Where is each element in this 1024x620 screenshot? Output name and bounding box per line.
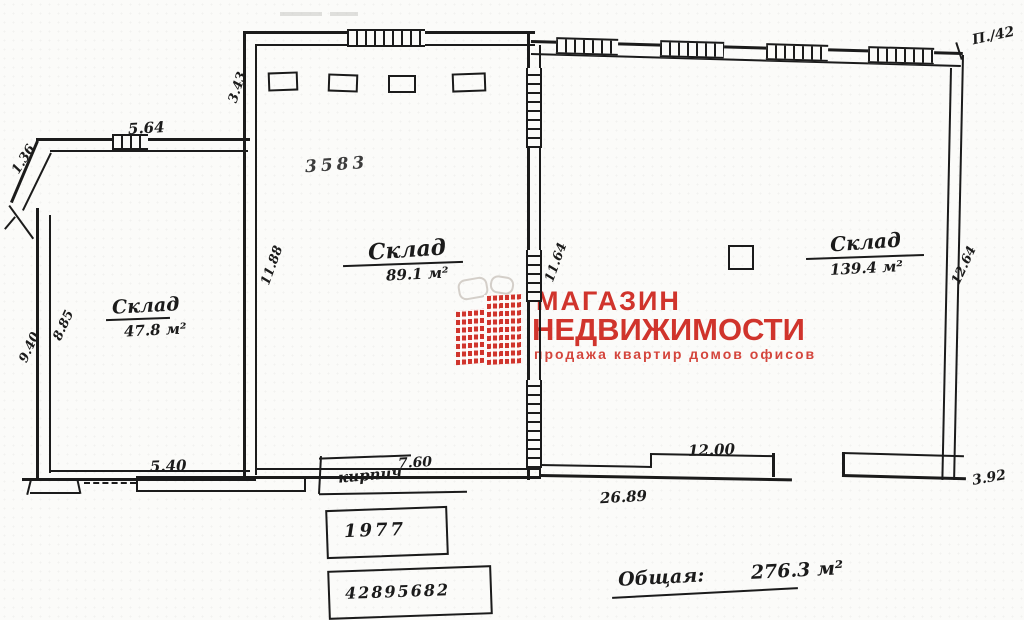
total-area-line: Общая: 276.3 м² [618,557,844,591]
dim-bottom-right: 3.92 [971,467,1007,489]
wall-segment [540,464,652,468]
dim-bottom-step: 12.00 [688,440,736,460]
year-stamp-text: 1977 [344,519,407,542]
room-right-name: Склад [829,228,901,257]
agency-watermark: МАГАЗИН НЕДВИЖИМОСТИ продажа квартир дом… [450,276,795,371]
door-leaf [8,205,34,239]
pillar [728,245,754,270]
dim-top-window: 5.64 [128,118,165,138]
dim-top-offset: 3.43 [226,70,250,105]
logo-title-line2: НЕДВИЖИМОСТИ [532,312,805,348]
material-bracket [319,491,467,496]
wall-segment [842,452,964,457]
wall-segment [255,45,257,475]
total-area-label: Общая: [618,564,705,590]
logo-tower-gap [484,295,487,364]
wall-segment [842,474,966,480]
logo-building-icon [487,294,523,365]
corner-note: П./42 [971,24,1016,49]
room-mid-name: Склад [367,234,447,265]
door-leaf-tick [4,216,16,230]
material-note: кирпич [337,463,402,487]
dim-bottom-mid: 7.60 [398,454,433,472]
dim-left-outer: 9.40 [16,330,43,365]
room-left-name: Склад [111,293,179,318]
wall-segment [243,33,246,480]
logo-tagline: продажа квартир домов офисов [534,346,816,362]
dim-bottom-left: 5.40 [150,456,187,475]
scan-smudge [330,12,358,16]
inventory-stamp-text: 42895682 [345,580,451,603]
window-hatch [556,37,618,56]
wall-segment [842,452,845,476]
logo-sketch-balloon-icon [489,274,516,296]
wall-segment [650,454,652,466]
floor-plan-scan: { "logo": { "line1": "МАГАЗИН", "line2":… [0,0,1024,605]
dim-right-wall: 12.64 [949,244,980,287]
dim-left-inner: 8.85 [50,308,77,343]
total-area-value: 276.3 м² [750,557,844,584]
room-mid-area: 89.1 м² [386,263,449,284]
pillar [452,72,487,92]
window-hatch [660,40,724,59]
threshold-line [30,492,80,494]
room-right-area: 139.4 м² [830,257,904,279]
material-bracket [318,456,322,494]
dashed-opening [84,482,136,484]
window-hatch [347,29,425,47]
wall-segment [49,215,51,473]
pillar [388,75,416,93]
plan-number-stamp: 3583 [304,153,369,177]
wall-segment [540,474,792,481]
dim-wall-left-mid: 11.88 [258,244,286,287]
dim-door: 1.36 [9,142,39,177]
wall-ladder-hatch [526,68,542,148]
window-hatch [868,46,934,65]
wall-segment [50,150,248,152]
wall-ladder-hatch [526,250,542,302]
room-left-area: 47.8 м² [124,319,187,340]
pillar [328,73,359,92]
pillar [268,71,299,91]
wall-ladder-hatch [526,380,542,468]
wall-segment [941,68,952,480]
logo-building-icon [456,309,484,365]
wall-segment [772,453,775,477]
window-hatch [766,43,828,62]
dim-bottom-total: 26.89 [600,487,648,507]
scan-smudge [280,12,322,16]
